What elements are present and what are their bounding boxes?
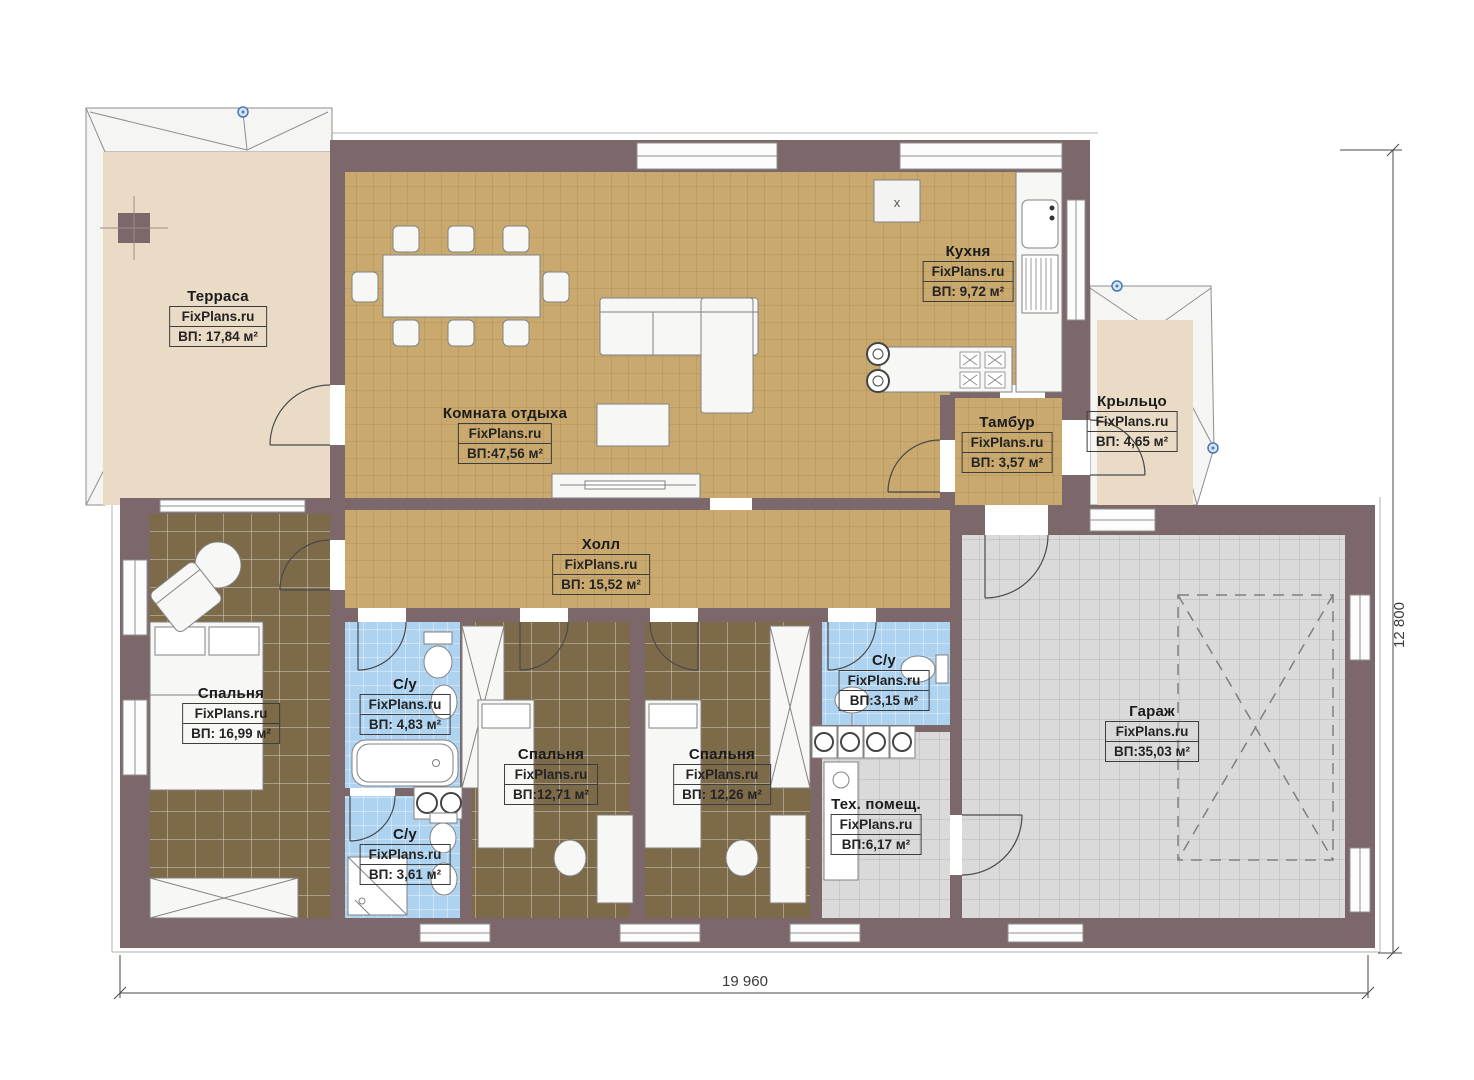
room-area: ВП:3,15 м² [840, 690, 929, 710]
room-name: Тамбур [979, 414, 1035, 431]
room-area: ВП: 16,99 м² [183, 723, 279, 743]
watermark: FixPlans.ru [361, 695, 450, 714]
watermark: FixPlans.ru [674, 765, 770, 784]
coffee-table [597, 404, 669, 446]
room-label-bedroom-3: Спальня FixPlans.ruВП: 12,26 м² [673, 746, 771, 805]
room-area: ВП:6,17 м² [832, 834, 921, 854]
dimension-width: 19 960 [722, 973, 768, 990]
room-label-vestibule: Тамбур FixPlans.ruВП: 3,57 м² [962, 414, 1053, 473]
room-name: Комната отдыха [443, 405, 567, 422]
watermark: FixPlans.ru [170, 307, 266, 326]
kitchen-x-marker: x [894, 195, 901, 210]
watermark: FixPlans.ru [1088, 412, 1177, 431]
room-area: ВП: 3,57 м² [963, 452, 1052, 472]
room-area: ВП: 9,72 м² [924, 281, 1013, 301]
watermark: FixPlans.ru [963, 433, 1052, 452]
wardrobe [150, 878, 298, 918]
watermark: FixPlans.ru [459, 424, 551, 443]
watermark: FixPlans.ru [505, 765, 597, 784]
room-name: С/у [393, 676, 417, 693]
watermark: FixPlans.ru [840, 671, 929, 690]
room-name: С/у [872, 652, 896, 669]
watermark: FixPlans.ru [924, 262, 1013, 281]
chair [554, 840, 586, 876]
room-label-kitchen: Кухня FixPlans.ruВП: 9,72 м² [923, 243, 1014, 302]
room-label-bathroom-1: С/у FixPlans.ruВП: 4,83 м² [360, 676, 451, 735]
room-label-garage: Гараж FixPlans.ruВП:35,03 м² [1105, 703, 1199, 762]
room-area: ВП: 15,52 м² [553, 574, 649, 594]
toilet [424, 646, 452, 678]
room-label-porch: Крыльцо FixPlans.ruВП: 4,65 м² [1087, 393, 1178, 452]
room-label-bathroom-2: С/у FixPlans.ruВП: 3,61 м² [360, 826, 451, 885]
room-name: Спальня [198, 685, 264, 702]
room-area: ВП:12,71 м² [505, 784, 597, 804]
watermark: FixPlans.ru [361, 845, 450, 864]
room-label-bedroom-1: Спальня FixPlans.ruВП: 16,99 м² [182, 685, 280, 744]
room-label-terrace: Терраса FixPlans.ruВП: 17,84 м² [169, 288, 267, 347]
room-area: ВП:47,56 м² [459, 443, 551, 463]
room-label-bedroom-2: Спальня FixPlans.ruВП:12,71 м² [504, 746, 598, 805]
room-label-lounge: Комната отдыха FixPlans.ruВП:47,56 м² [443, 405, 567, 464]
desk [597, 815, 633, 903]
room-area: ВП: 12,26 м² [674, 784, 770, 804]
room-name: С/у [393, 826, 417, 843]
dimension-height: 12 800 [1391, 602, 1408, 648]
room-area: ВП: 4,83 м² [361, 714, 450, 734]
room-name: Кухня [946, 243, 991, 260]
room-label-hall: Холл FixPlans.ruВП: 15,52 м² [552, 536, 650, 595]
tv-console [552, 474, 700, 498]
room-area: ВП: 3,61 м² [361, 864, 450, 884]
chair [726, 840, 758, 876]
room-name: Терраса [187, 288, 249, 305]
room-area: ВП: 4,65 м² [1088, 431, 1177, 451]
room-name: Гараж [1129, 703, 1175, 720]
room-name: Холл [582, 536, 620, 553]
room-name: Тех. помещ. [831, 796, 921, 813]
watermark: FixPlans.ru [832, 815, 921, 834]
watermark: FixPlans.ru [183, 704, 279, 723]
sink-drainer [1022, 255, 1058, 313]
watermark: FixPlans.ru [1106, 722, 1198, 741]
desk [770, 815, 806, 903]
room-name: Крыльцо [1097, 393, 1167, 410]
watermark: FixPlans.ru [553, 555, 649, 574]
bathtub [352, 740, 458, 786]
floor-plan-canvas: x 19 960 12 800 [0, 0, 1474, 1080]
room-label-bathroom-3: С/у FixPlans.ruВП:3,15 м² [839, 652, 930, 711]
floor-plan-page: x 19 960 12 800 Терраса FixPlans.ruВП: 1… [0, 0, 1474, 1080]
room-label-utility: Тех. помещ. FixPlans.ruВП:6,17 м² [831, 796, 922, 855]
washer-row [812, 726, 915, 758]
room-area: ВП:35,03 м² [1106, 741, 1198, 761]
room-area: ВП: 17,84 м² [170, 326, 266, 346]
room-name: Спальня [689, 746, 755, 763]
room-name: Спальня [518, 746, 584, 763]
wardrobe [770, 626, 810, 788]
